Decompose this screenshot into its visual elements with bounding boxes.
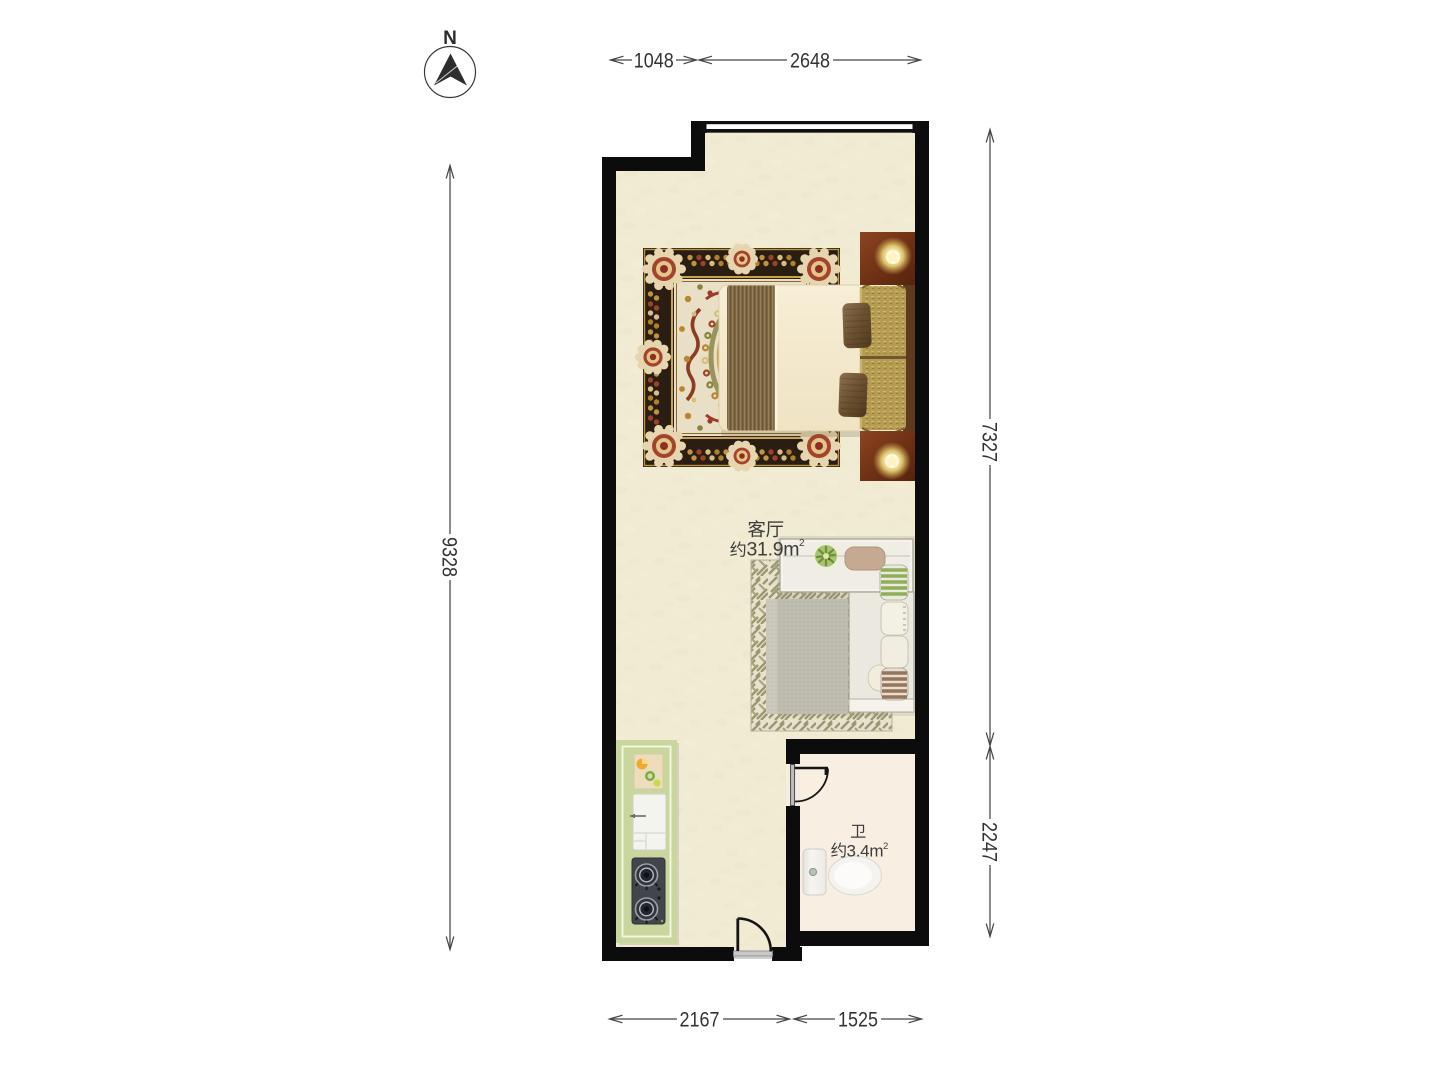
svg-text:1048: 1048 [634,49,674,72]
svg-text:1525: 1525 [838,1008,878,1031]
svg-text:9328: 9328 [438,537,461,577]
svg-text:N: N [443,28,457,49]
svg-text:31.9m: 31.9m [747,539,800,561]
svg-text:2247: 2247 [978,822,1001,862]
svg-text:2648: 2648 [790,49,830,72]
svg-text:2: 2 [799,538,805,549]
svg-text:2167: 2167 [680,1008,720,1031]
svg-text:3.4m: 3.4m [847,841,884,860]
svg-text:7327: 7327 [978,422,1001,462]
svg-text:2: 2 [883,841,888,852]
